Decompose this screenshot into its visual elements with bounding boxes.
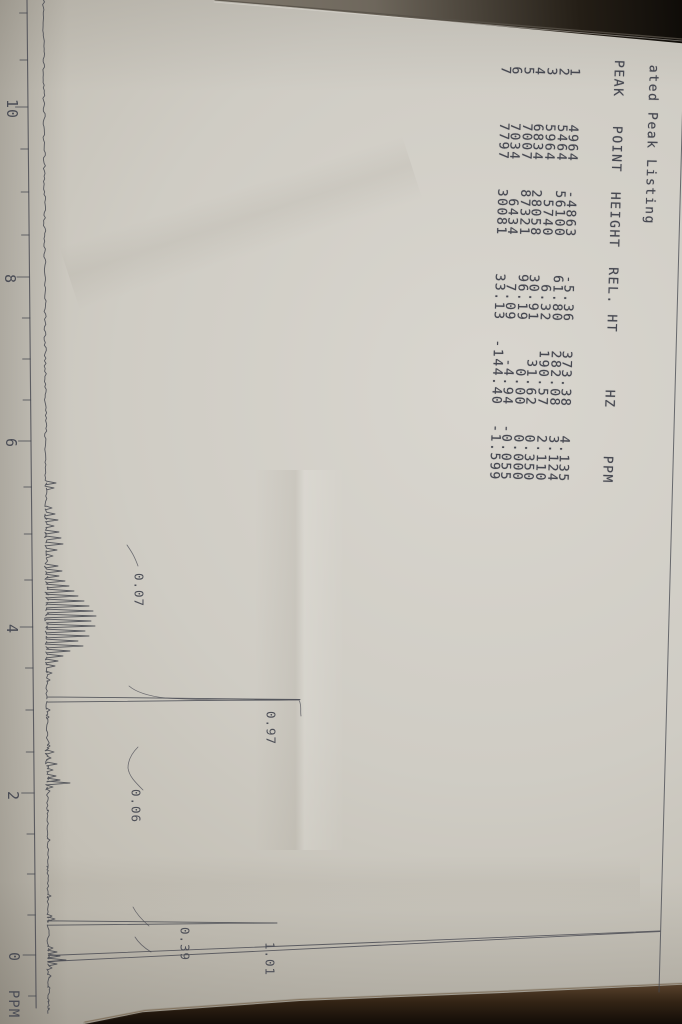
tick-label-4: 4 bbox=[3, 624, 21, 634]
peak-listing: ated Peak Listing PEAK POINT HEIGHT REL.… bbox=[538, 58, 682, 502]
peak-listing-header: PEAK POINT HEIGHT REL. HT HZ PPM bbox=[600, 60, 624, 492]
peak-listing-title: ated Peak Listing bbox=[635, 61, 659, 493]
axis-unit-label: PPM bbox=[5, 990, 21, 1018]
integration-label-4ppm: 0.07 bbox=[132, 573, 147, 607]
integration-label-035ppm: 0.39 bbox=[178, 927, 193, 961]
tick-label-0: 0 bbox=[5, 952, 23, 962]
integration-label-2ppm: 0.06 bbox=[129, 789, 144, 823]
integration-label-3ppm: 0.97 bbox=[264, 711, 279, 745]
tick-label-2: 2 bbox=[4, 791, 22, 801]
tick-label-8: 8 bbox=[1, 274, 19, 284]
integration-label-0ppm: 1.01 bbox=[263, 942, 278, 976]
nmr-printout-photo: 10 8 6 4 2 0 PPM 0.07 0.97 0.06 0.39 1.0… bbox=[0, 0, 682, 1024]
tick-label-6: 6 bbox=[2, 438, 20, 448]
peak-listing-rows: 1 4964 -4863 -5.36 373.38 4.135 2 5464 5… bbox=[487, 57, 580, 491]
tick-label-10: 10 bbox=[3, 99, 21, 119]
